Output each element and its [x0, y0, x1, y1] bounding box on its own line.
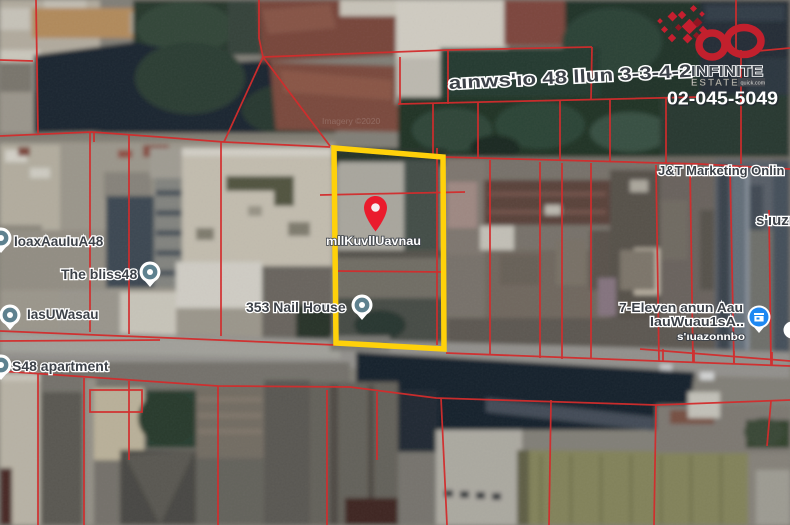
- svg-text:Imagery ©2020: Imagery ©2020: [322, 116, 381, 126]
- svg-text:IasUWasau: IasUWasau: [27, 307, 99, 322]
- svg-text:The bliss48: The bliss48: [61, 266, 137, 282]
- svg-text:ESTATE: ESTATE: [691, 78, 740, 89]
- svg-text:IauWuau1sA..: IauWuau1sA..: [650, 314, 744, 329]
- svg-text:02-045-5049: 02-045-5049: [667, 89, 778, 109]
- svg-text:IoaxAauIuA48: IoaxAauIuA48: [14, 234, 104, 249]
- svg-text:s'ıuzn: s'ıuzn: [756, 212, 790, 229]
- svg-text:quick.com: quick.com: [741, 81, 766, 87]
- svg-text:7-Eleven anun Aau: 7-Eleven anun Aau: [619, 300, 743, 315]
- svg-text:353 Nail House: 353 Nail House: [246, 299, 346, 315]
- svg-text:mllKuvllUavnau: mllKuvllUavnau: [326, 236, 421, 248]
- svg-text:J&T Marketing Onlin: J&T Marketing Onlin: [658, 163, 784, 178]
- svg-text:s'ıuazonnbo: s'ıuazonnbo: [677, 331, 745, 343]
- svg-text:S48 apartment: S48 apartment: [12, 358, 109, 374]
